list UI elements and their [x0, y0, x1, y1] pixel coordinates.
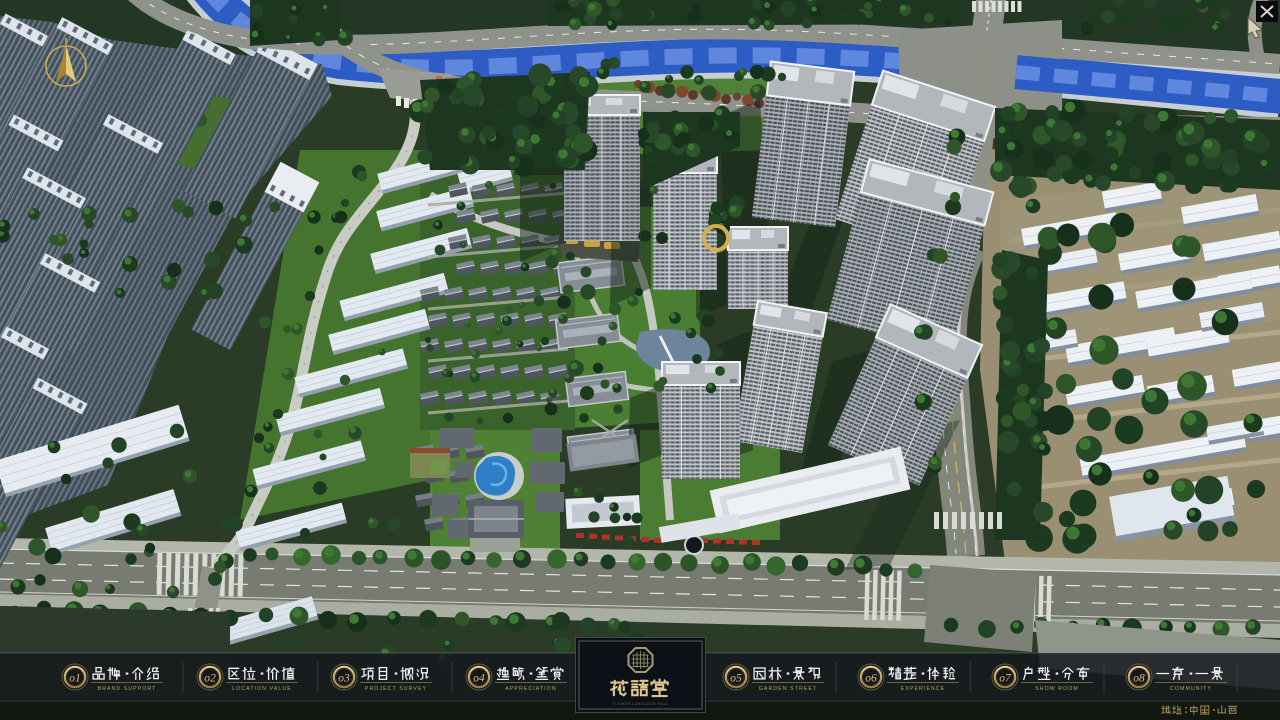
svg-text:o8: o8: [1133, 673, 1145, 685]
svg-text:o6: o6: [865, 673, 877, 685]
svg-text:FLOWER LANGUAGE HALL: FLOWER LANGUAGE HALL: [612, 702, 668, 706]
svg-text:PROJECT SURVEY: PROJECT SURVEY: [365, 686, 427, 692]
svg-text:APPRECIATION: APPRECIATION: [505, 686, 556, 692]
svg-text:LOCATION VALUE: LOCATION VALUE: [232, 686, 292, 692]
svg-text:BRAND SUPPORT: BRAND SUPPORT: [98, 686, 157, 692]
svg-text:o5: o5: [730, 673, 742, 685]
svg-text:o4: o4: [473, 673, 485, 685]
svg-text:GARDEN STREET: GARDEN STREET: [759, 686, 817, 692]
svg-text:o1: o1: [69, 673, 81, 685]
svg-text:COMMUNITY: COMMUNITY: [1170, 686, 1212, 692]
svg-text:o3: o3: [338, 673, 350, 685]
svg-text:EXPERIENCE: EXPERIENCE: [901, 686, 945, 692]
svg-text:o7: o7: [999, 673, 1012, 685]
svg-text:o2: o2: [204, 673, 216, 685]
svg-text:SHOW ROOM: SHOW ROOM: [1035, 686, 1079, 692]
